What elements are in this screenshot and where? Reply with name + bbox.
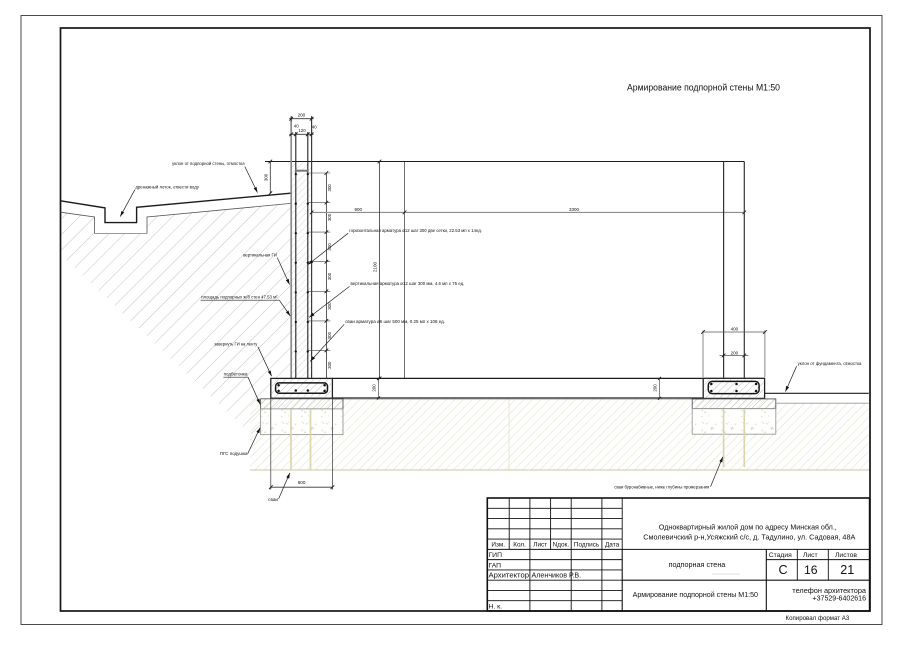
svg-text:300: 300 <box>327 272 332 280</box>
svg-text:Кол.: Кол. <box>513 542 526 549</box>
svg-text:16: 16 <box>804 563 818 577</box>
svg-text:200: 200 <box>731 350 739 355</box>
svg-text:подбетонка: подбетонка <box>224 372 248 377</box>
svg-text:Лист: Лист <box>533 542 547 549</box>
svg-text:Аленчиков Р.В.: Аленчиков Р.В. <box>532 573 582 580</box>
svg-text:600: 600 <box>298 480 306 485</box>
svg-text:Подпись: Подпись <box>574 542 600 549</box>
svg-text:сваи: сваи <box>268 497 278 502</box>
svg-text:ГАП: ГАП <box>489 562 502 569</box>
svg-text:Изм.: Изм. <box>491 542 505 549</box>
svg-text:Nдок.: Nдок. <box>553 542 570 549</box>
svg-text:400: 400 <box>731 327 739 332</box>
svg-text:Н. к.: Н. к. <box>489 603 503 610</box>
svg-text:вертикальная арматура ø12 шаг: вертикальная арматура ø12 шаг 300 мм, 4.… <box>351 281 465 286</box>
svg-text:300: 300 <box>327 213 332 221</box>
svg-text:вертикальная ГИ: вертикальная ГИ <box>243 252 277 257</box>
svg-text:сваи арматура ø6 шаг 500 мм,: сваи арматура ø6 шаг 500 мм, 0.25 мп х 1… <box>345 319 445 324</box>
svg-text:+37529-6402616: +37529-6402616 <box>813 594 867 603</box>
svg-text:уклон от подпорной стены, отмо: уклон от подпорной стены, отмостка <box>172 160 245 166</box>
svg-text:Стадия: Стадия <box>769 552 792 559</box>
svg-text:завернуть ГИ на ленту: завернуть ГИ на ленту <box>214 341 258 346</box>
svg-text:Дата: Дата <box>605 542 620 549</box>
svg-text:21: 21 <box>840 563 854 577</box>
svg-text:120: 120 <box>298 128 306 133</box>
svg-text:Смолевичский р-н,Усяжский с/с,: Смолевичский р-н,Усяжский с/с, д. Тадули… <box>643 533 855 541</box>
svg-text:ГИП: ГИП <box>489 552 503 559</box>
svg-text:300: 300 <box>327 361 332 369</box>
svg-text:Копировал формат А3: Копировал формат А3 <box>786 615 850 622</box>
svg-text:уклон от фундамента, отмостка: уклон от фундамента, отмостка <box>798 361 862 366</box>
svg-text:Лист: Лист <box>803 552 818 559</box>
svg-text:3300: 3300 <box>569 207 580 212</box>
svg-text:2100: 2100 <box>372 261 377 272</box>
svg-text:сваи буронабивные, ниже глубин: сваи буронабивные, ниже глубины промерза… <box>614 485 709 490</box>
svg-text:200: 200 <box>653 384 658 392</box>
svg-text:подпорная стена: подпорная стена <box>669 560 726 569</box>
svg-text:С: С <box>778 563 787 577</box>
svg-text:300: 300 <box>327 184 332 192</box>
svg-text:Листов: Листов <box>835 552 857 559</box>
svg-text:Армирование подпорной стены М1: Армирование подпорной стены М1:50 <box>633 590 758 599</box>
svg-text:900: 900 <box>355 207 363 212</box>
svg-text:ПГС подушка: ПГС подушка <box>220 451 248 456</box>
svg-text:200: 200 <box>298 113 306 118</box>
svg-text:Армирование подпорной стены М1: Армирование подпорной стены М1:50 <box>627 83 780 93</box>
svg-text:площадь подпорных ж/б стен 47.: площадь подпорных ж/б стен 47.53 м² <box>201 294 278 299</box>
svg-text:300: 300 <box>263 173 268 181</box>
svg-text:дренажный лоток, отвести воду: дренажный лоток, отвести воду <box>135 183 199 189</box>
svg-text:Архитектор: Архитектор <box>489 573 530 580</box>
svg-text:40: 40 <box>312 124 317 129</box>
svg-text:горизонтальная арматура ø12 ша: горизонтальная арматура ø12 шаг 300 две … <box>349 228 482 233</box>
svg-text:200: 200 <box>372 384 377 392</box>
svg-text:Одноквартирный жилой дом по ад: Одноквартирный жилой дом по адресу Минск… <box>659 523 837 531</box>
